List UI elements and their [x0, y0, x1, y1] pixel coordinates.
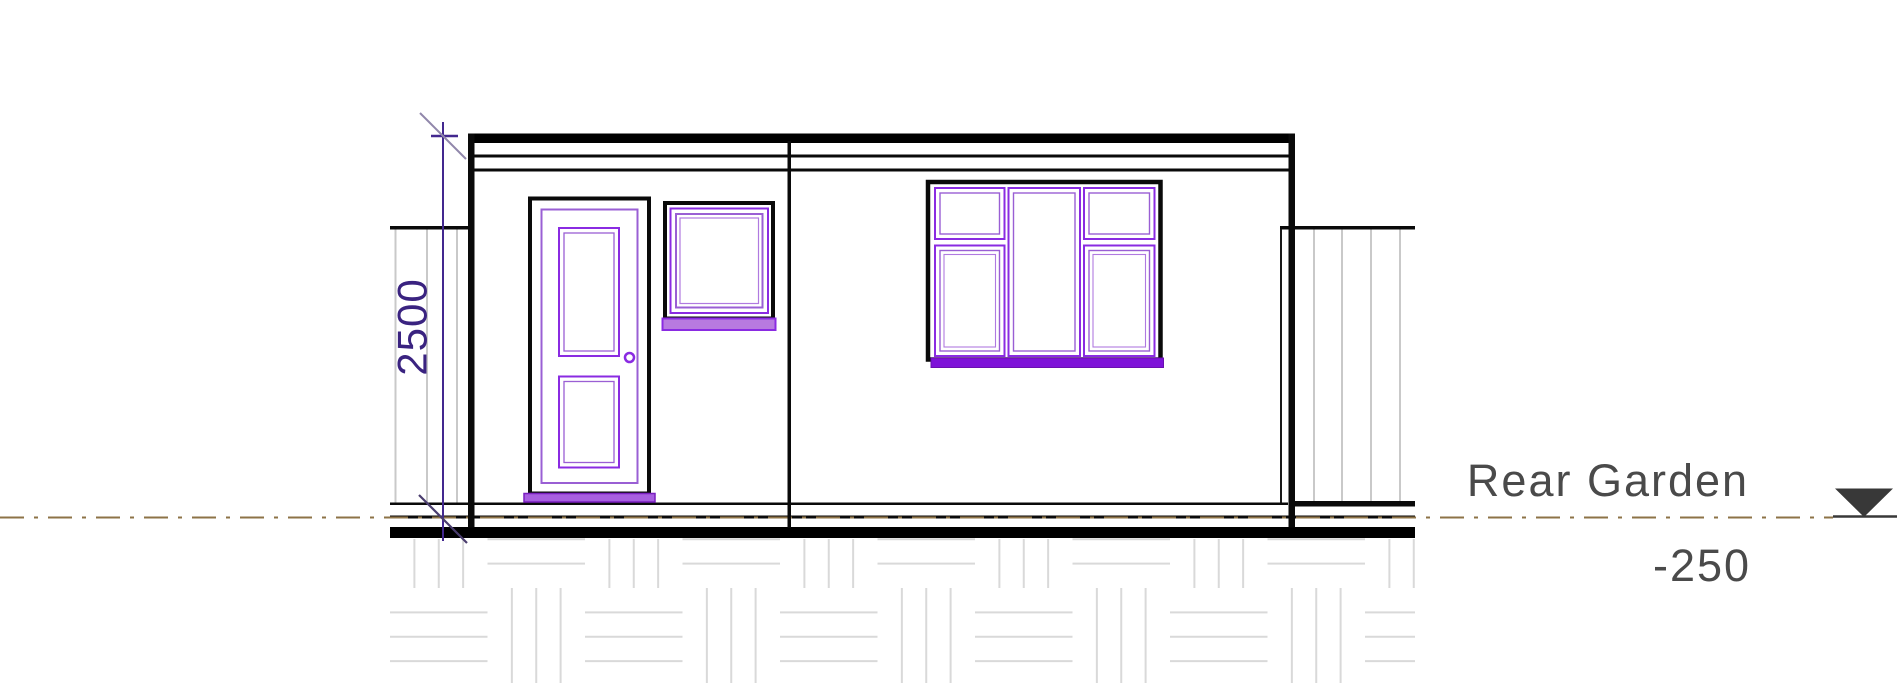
- door-frame: [530, 199, 649, 494]
- fence-right-edge-line: [1280, 229, 1282, 503]
- fascia-line-2: [468, 169, 1295, 172]
- door-threshold: [524, 494, 655, 503]
- ground-surface-line: [390, 503, 1288, 506]
- window-small-frame: [665, 203, 773, 319]
- elevation-drawing-canvas: 2500 Rear Garden -250: [0, 0, 1897, 683]
- level-elevation-label[interactable]: -250: [1653, 540, 1751, 591]
- dimension-label[interactable]: 2500: [389, 278, 436, 375]
- door-knob: [625, 353, 634, 362]
- wall-middle-joint: [788, 141, 792, 528]
- fence-right-top-rail: [1280, 226, 1415, 230]
- level-name-label[interactable]: Rear Garden: [1467, 455, 1749, 506]
- roof-fascia-band: [468, 134, 1295, 144]
- wall-right-edge: [1289, 134, 1296, 528]
- window-small[interactable]: [663, 203, 776, 330]
- door[interactable]: [524, 199, 655, 503]
- fascia-line-1: [468, 155, 1295, 158]
- level-marker-icon[interactable]: [1835, 489, 1893, 518]
- window-large[interactable]: [928, 182, 1164, 368]
- fence-right-bottom-rail: [1295, 501, 1415, 507]
- fence-right: [1280, 226, 1415, 507]
- window-large-sill: [931, 358, 1164, 368]
- wall-left-edge: [468, 134, 475, 528]
- level-annotation[interactable]: Rear Garden -250: [1467, 455, 1897, 591]
- foundation-hatch: [390, 539, 1415, 683]
- window-large-frame: [928, 182, 1161, 360]
- ground-slab-band: [390, 527, 1415, 538]
- window-small-sill: [663, 319, 776, 331]
- fence-right-boards: [1314, 230, 1400, 502]
- fence-left-top-rail: [390, 226, 471, 230]
- elevation-drawing: 2500 Rear Garden -250: [0, 0, 1897, 683]
